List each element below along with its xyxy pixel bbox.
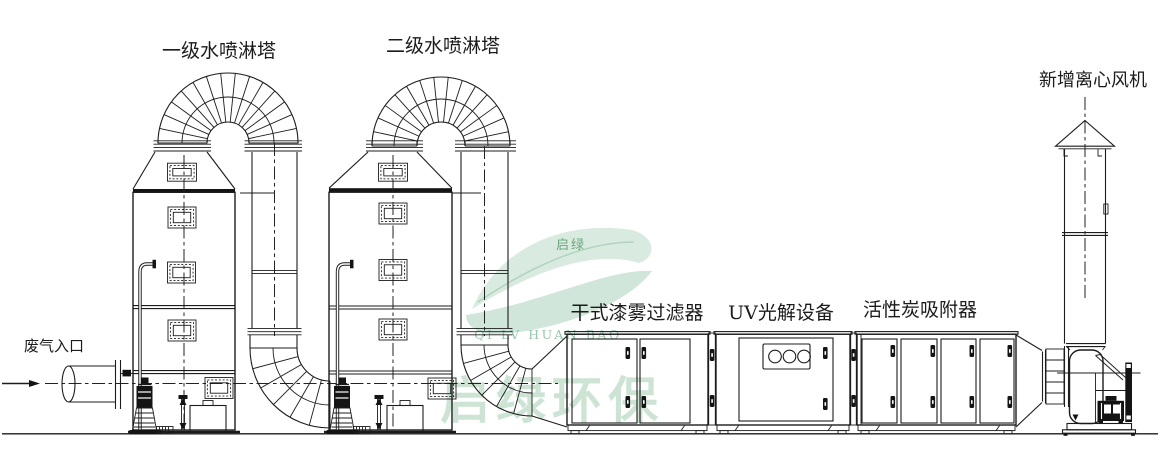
watermark-brand-text: 启绿环保	[440, 371, 664, 430]
uv-lamp-port-icon	[769, 350, 782, 363]
carbon-adsorber-box	[855, 332, 1018, 434]
spray-tower-1	[130, 73, 303, 434]
door-latch-icon	[626, 396, 631, 408]
fan-inlet-connector	[1043, 346, 1069, 407]
tower2-dosing-tank	[387, 401, 423, 433]
access-door	[205, 378, 233, 399]
door-latch-icon	[823, 347, 828, 359]
centrifugal-fan-label: 新增离心风机	[1039, 70, 1147, 91]
tower1-riser-pipe	[179, 395, 188, 430]
viewport	[168, 207, 196, 228]
spray-tower-2-label: 二级水喷淋塔	[386, 35, 500, 57]
box-seam-strip	[709, 333, 716, 425]
tower1-circulation-pump	[130, 378, 162, 435]
process-flow-diagram: 启绿 QI LV HUAN BAO 启绿环保	[0, 0, 1168, 471]
uv-lamp-window	[763, 344, 810, 369]
watermark-logo-text: 启绿	[556, 238, 586, 253]
carbon-adsorber-label: 活性炭吸附器	[863, 299, 977, 321]
uv-lamp-port-icon	[783, 350, 796, 363]
tower2-riser-pipe	[375, 395, 384, 430]
tower2-ubend-duct	[366, 77, 516, 151]
duct-elbow-1	[250, 335, 330, 428]
inlet-fitting	[123, 370, 132, 377]
viewport	[168, 320, 196, 341]
flow-arrow-icon	[29, 380, 40, 387]
uv-photolysis-box	[714, 332, 852, 434]
uv-photolysis-label: UV光解设备	[728, 302, 834, 324]
uv-door	[739, 338, 833, 421]
centrifugal-fan	[1016, 97, 1141, 436]
door-latch-icon	[823, 398, 828, 410]
uv-lamp-port-icon	[798, 350, 811, 363]
box-seam-strip	[851, 333, 857, 425]
tower1-downcomer-duct	[240, 143, 302, 336]
ground-line	[2, 432, 1158, 434]
tower1-dosing-tank	[190, 401, 226, 433]
tower1-ubend-duct	[154, 73, 303, 151]
diagram-canvas: 启绿 QI LV HUAN BAO 启绿环保	[0, 0, 1168, 471]
tower2-hopper-top	[329, 152, 452, 192]
door-latch-icon	[642, 396, 647, 408]
viewport	[168, 163, 197, 181]
dry-filter-label: 干式漆雾过滤器	[570, 302, 703, 324]
tower2-circulation-pump	[327, 378, 359, 435]
waste-gas-inlet	[2, 360, 134, 409]
waste-gas-inlet-label: 废气入口	[24, 337, 84, 355]
viewport	[168, 262, 196, 283]
door-latch-icon	[626, 347, 631, 359]
bearing-pedestal	[1125, 363, 1132, 423]
fan-motor	[1098, 396, 1125, 424]
fan-outlet-cone	[1016, 335, 1042, 427]
spray-tower-1-label: 一级水喷淋塔	[162, 40, 276, 62]
door-latch-icon	[642, 347, 647, 359]
